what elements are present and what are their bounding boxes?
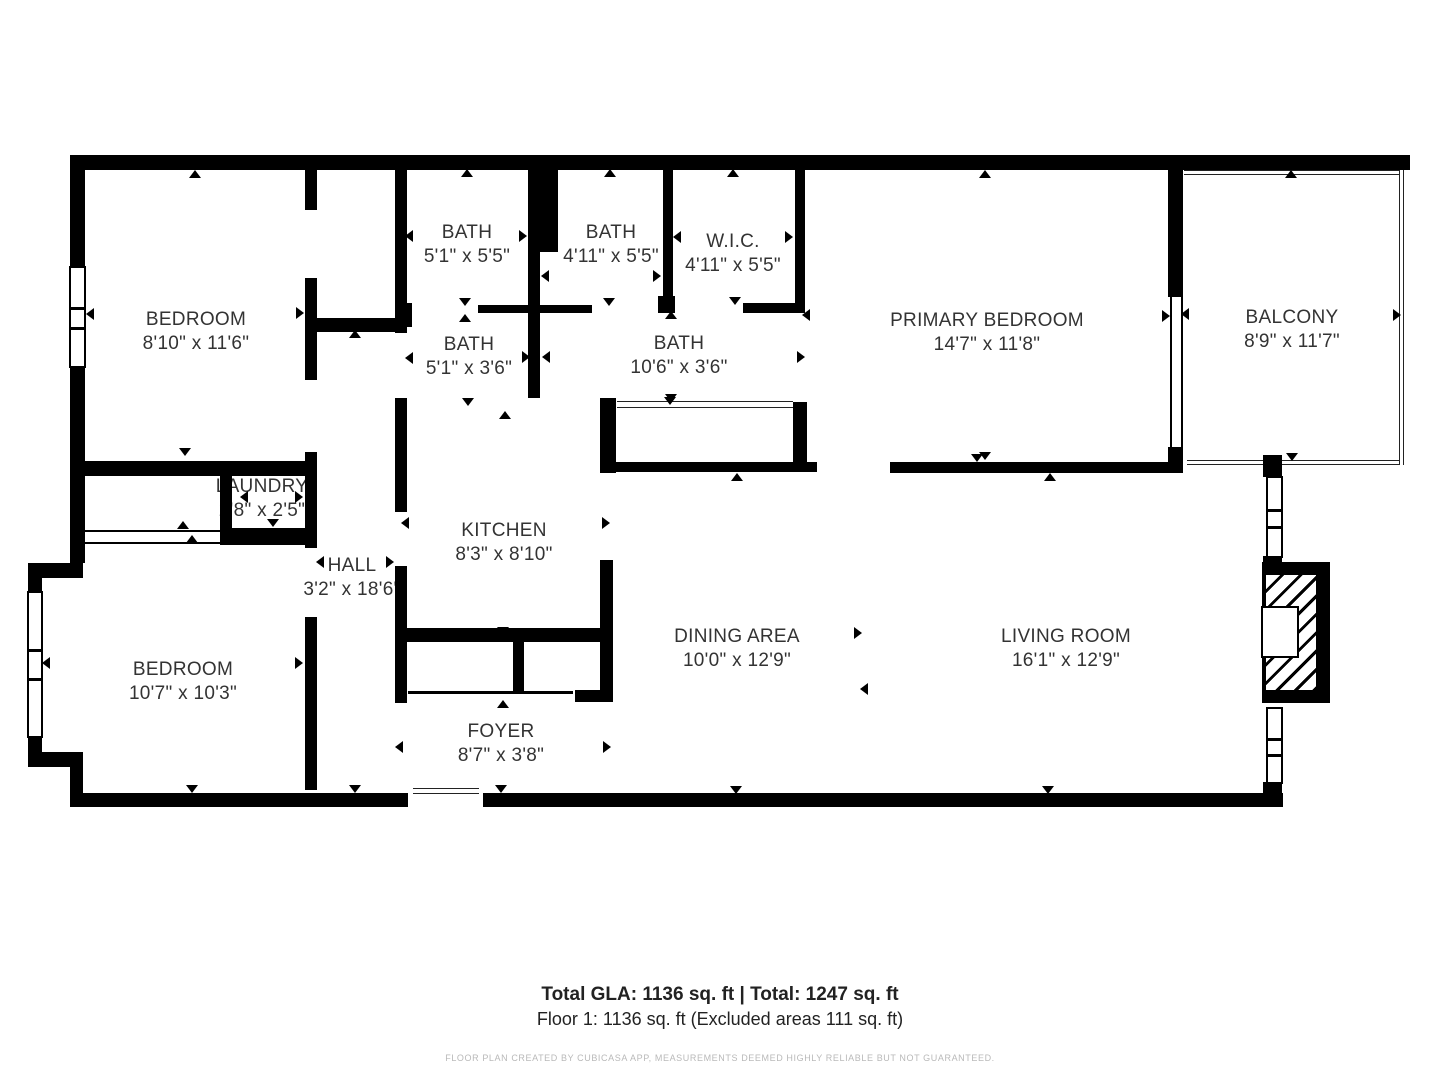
wall [528,170,558,252]
room-label: DINING AREA10'0" x 12'9" [674,625,800,673]
room-name: BEDROOM [129,658,237,682]
opening-arrow-icon [664,397,676,405]
opening-arrow-icon [495,785,507,793]
opening-arrow-icon [665,311,677,319]
wall [305,617,317,790]
opening-arrow-icon [401,517,409,529]
wall [28,578,42,592]
window [27,591,43,738]
opening-arrow-icon [349,330,361,338]
room-label: BATH5'1" x 5'5" [424,221,510,269]
wall [395,398,407,512]
room-label: LIVING ROOM16'1" x 12'9" [1001,625,1131,673]
total-area-text: Total GLA: 1136 sq. ft | Total: 1247 sq.… [0,982,1440,1007]
room-label: KITCHEN8'3" x 8'10" [455,519,552,567]
room-name: BATH [424,221,510,245]
room-name: FOYER [458,720,544,744]
room-dimensions: 14'7" x 11'8" [890,333,1084,357]
opening-arrow-icon [267,519,279,527]
opening-arrow-icon [1044,473,1056,481]
wall [28,752,83,767]
opening-arrow-icon [186,785,198,793]
wall [890,462,1168,473]
room-dimensions: 10'6" x 3'6" [630,356,727,380]
room-name: LIVING ROOM [1001,625,1131,649]
opening-arrow-icon [459,314,471,322]
wall [575,690,613,702]
opening-arrow-icon [731,473,743,481]
room-dimensions: 8'10" x 11'6" [143,332,250,356]
room-dimensions: 10'0" x 12'9" [674,649,800,673]
opening-arrow-icon [405,352,413,364]
opening-arrow-icon [179,448,191,456]
opening-arrow-icon [653,270,661,282]
room-dimensions: 4'11" x 5'5" [563,245,659,269]
window-mullion [70,327,85,330]
opening-arrow-icon [971,454,983,462]
opening-arrow-icon [603,741,611,753]
opening-arrow-icon [1285,170,1297,178]
room-label: BEDROOM8'10" x 11'6" [143,308,250,356]
opening-arrow-icon [542,351,550,363]
room-dimensions: 16'1" x 12'9" [1001,649,1131,673]
opening-arrow-icon [386,556,394,568]
opening-arrow-icon [86,308,94,320]
wall [220,476,232,528]
room-name: DINING AREA [674,625,800,649]
opening-arrow-icon [1286,453,1298,461]
opening-arrow-icon [269,468,281,476]
floor-area-text: Floor 1: 1136 sq. ft (Excluded areas 111… [0,1007,1440,1031]
door-line [85,530,220,532]
room-label: BATH4'11" x 5'5" [563,221,659,269]
opening-arrow-icon [1393,309,1401,321]
window [1266,707,1283,784]
window [69,266,86,368]
railing-line [413,788,479,794]
window-mullion [1267,738,1282,741]
window-mullion [28,678,42,681]
opening-arrow-icon [497,627,509,635]
opening-arrow-icon [729,297,741,305]
room-name: KITCHEN [455,519,552,543]
room-name: BALCONY [1244,306,1340,330]
room-name: W.I.C. [685,230,781,254]
opening-arrow-icon [797,351,805,363]
wall [395,303,412,327]
opening-arrow-icon [802,309,810,321]
room-name: BATH [563,221,659,245]
window [1266,476,1283,558]
opening-arrow-icon [499,411,511,419]
wall [305,452,317,548]
room-label: BATH5'1" x 3'6" [426,333,512,381]
wall [305,278,317,380]
opening-arrow-icon [186,535,198,543]
plan-footer: Total GLA: 1136 sq. ft | Total: 1247 sq.… [0,982,1440,1063]
door-line [1170,297,1172,448]
room-dimensions: 8'3" x 8'10" [455,543,552,567]
wall [795,170,805,313]
opening-arrow-icon [860,683,868,695]
opening-arrow-icon [604,169,616,177]
wall [305,170,317,210]
railing-line [617,401,793,408]
opening-arrow-icon [785,231,793,243]
fireplace-firebox [1261,606,1299,658]
wall [1168,170,1183,297]
room-dimensions: 3'2" x 18'6" [303,578,400,602]
opening-arrow-icon [727,169,739,177]
opening-arrow-icon [189,170,201,178]
opening-arrow-icon [522,351,530,363]
wall [70,170,85,266]
opening-arrow-icon [395,741,403,753]
room-label: FOYER8'7" x 3'8" [458,720,544,768]
wall [70,155,1410,170]
room-label: BEDROOM10'7" x 10'3" [129,658,237,706]
wall [513,642,524,691]
room-name: BATH [426,333,512,357]
wall [70,767,83,793]
window-mullion [70,307,85,310]
opening-arrow-icon [1042,786,1054,794]
opening-arrow-icon [349,785,361,793]
room-dimensions: 5'1" x 3'6" [426,357,512,381]
wall [28,563,83,578]
wall [478,305,592,313]
room-dimensions: 4'11" x 5'5" [685,254,781,278]
opening-arrow-icon [541,270,549,282]
opening-arrow-icon [316,556,324,568]
opening-arrow-icon [177,521,189,529]
opening-arrow-icon [673,231,681,243]
door-line [85,542,220,544]
wall [483,793,1283,807]
opening-arrow-icon [295,491,303,503]
opening-arrow-icon [461,169,473,177]
opening-arrow-icon [42,657,50,669]
wall [663,170,673,303]
opening-arrow-icon [459,298,471,306]
opening-arrow-icon [1162,310,1170,322]
wall [1263,455,1282,477]
opening-arrow-icon [603,298,615,306]
opening-arrow-icon [1181,308,1189,320]
wall [1168,447,1183,473]
floor-plan-page: BEDROOM8'10" x 11'6"BATH5'1" x 5'5"BATH4… [0,0,1440,1080]
opening-arrow-icon [602,517,610,529]
window-mullion [1267,509,1282,512]
room-name: BEDROOM [143,308,250,332]
room-label: BATH10'6" x 3'6" [630,332,727,380]
opening-arrow-icon [979,170,991,178]
wall [70,793,408,807]
room-name: BATH [630,332,727,356]
opening-arrow-icon [730,786,742,794]
room-dimensions: 8'9" x 11'7" [1244,330,1340,354]
room-label: BALCONY8'9" x 11'7" [1244,306,1340,354]
window-mullion [1267,526,1282,529]
opening-arrow-icon [854,627,862,639]
opening-arrow-icon [497,700,509,708]
opening-arrow-icon [240,491,248,503]
room-dimensions: 10'7" x 10'3" [129,682,237,706]
window-mullion [1267,754,1282,757]
room-label: PRIMARY BEDROOM14'7" x 11'8" [890,309,1084,357]
opening-arrow-icon [296,307,304,319]
opening-arrow-icon [295,657,303,669]
wall [603,462,817,472]
room-dimensions: 8'7" x 3'8" [458,744,544,768]
wall [220,528,317,545]
room-label: W.I.C.4'11" x 5'5" [685,230,781,278]
room-name: PRIMARY BEDROOM [890,309,1084,333]
window-mullion [28,649,42,652]
door-line [408,691,573,694]
opening-arrow-icon [405,230,413,242]
disclaimer-text: FLOOR PLAN CREATED BY CUBICASA APP, MEAS… [0,1053,1440,1063]
opening-arrow-icon [462,398,474,406]
room-dimensions: 5'1" x 5'5" [424,245,510,269]
opening-arrow-icon [519,230,527,242]
